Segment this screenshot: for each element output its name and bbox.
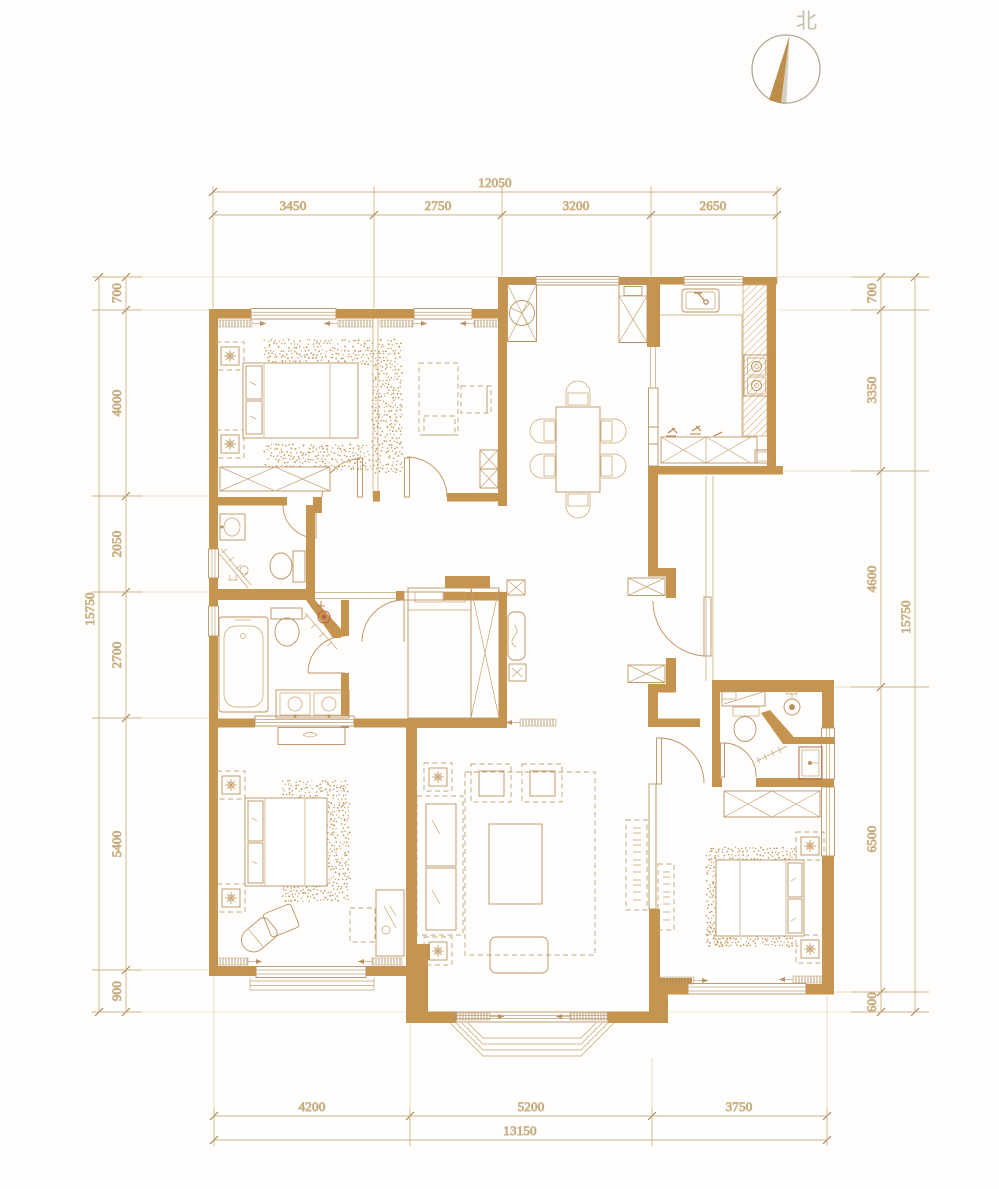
svg-text:2700: 2700 bbox=[109, 642, 124, 669]
svg-text:13150: 13150 bbox=[503, 1123, 537, 1138]
svg-text:5200: 5200 bbox=[518, 1099, 545, 1114]
svg-text:5400: 5400 bbox=[109, 831, 124, 858]
svg-text:2650: 2650 bbox=[700, 198, 727, 213]
svg-text:15750: 15750 bbox=[82, 592, 97, 626]
svg-text:4600: 4600 bbox=[864, 566, 879, 593]
svg-text:700: 700 bbox=[109, 283, 124, 303]
svg-text:12050: 12050 bbox=[478, 175, 512, 190]
svg-text:4200: 4200 bbox=[299, 1099, 326, 1114]
svg-text:3450: 3450 bbox=[280, 198, 307, 213]
svg-text:3200: 3200 bbox=[563, 198, 590, 213]
svg-text:3750: 3750 bbox=[726, 1099, 753, 1114]
svg-text:3350: 3350 bbox=[864, 377, 879, 404]
svg-text:北: 北 bbox=[796, 9, 817, 33]
svg-text:2050: 2050 bbox=[109, 531, 124, 558]
svg-text:4000: 4000 bbox=[109, 390, 124, 417]
svg-text:700: 700 bbox=[864, 283, 879, 303]
svg-text:900: 900 bbox=[109, 981, 124, 1001]
svg-text:2750: 2750 bbox=[425, 198, 452, 213]
svg-text:600: 600 bbox=[864, 992, 879, 1012]
svg-text:15750: 15750 bbox=[898, 600, 913, 634]
svg-text:6500: 6500 bbox=[864, 826, 879, 853]
